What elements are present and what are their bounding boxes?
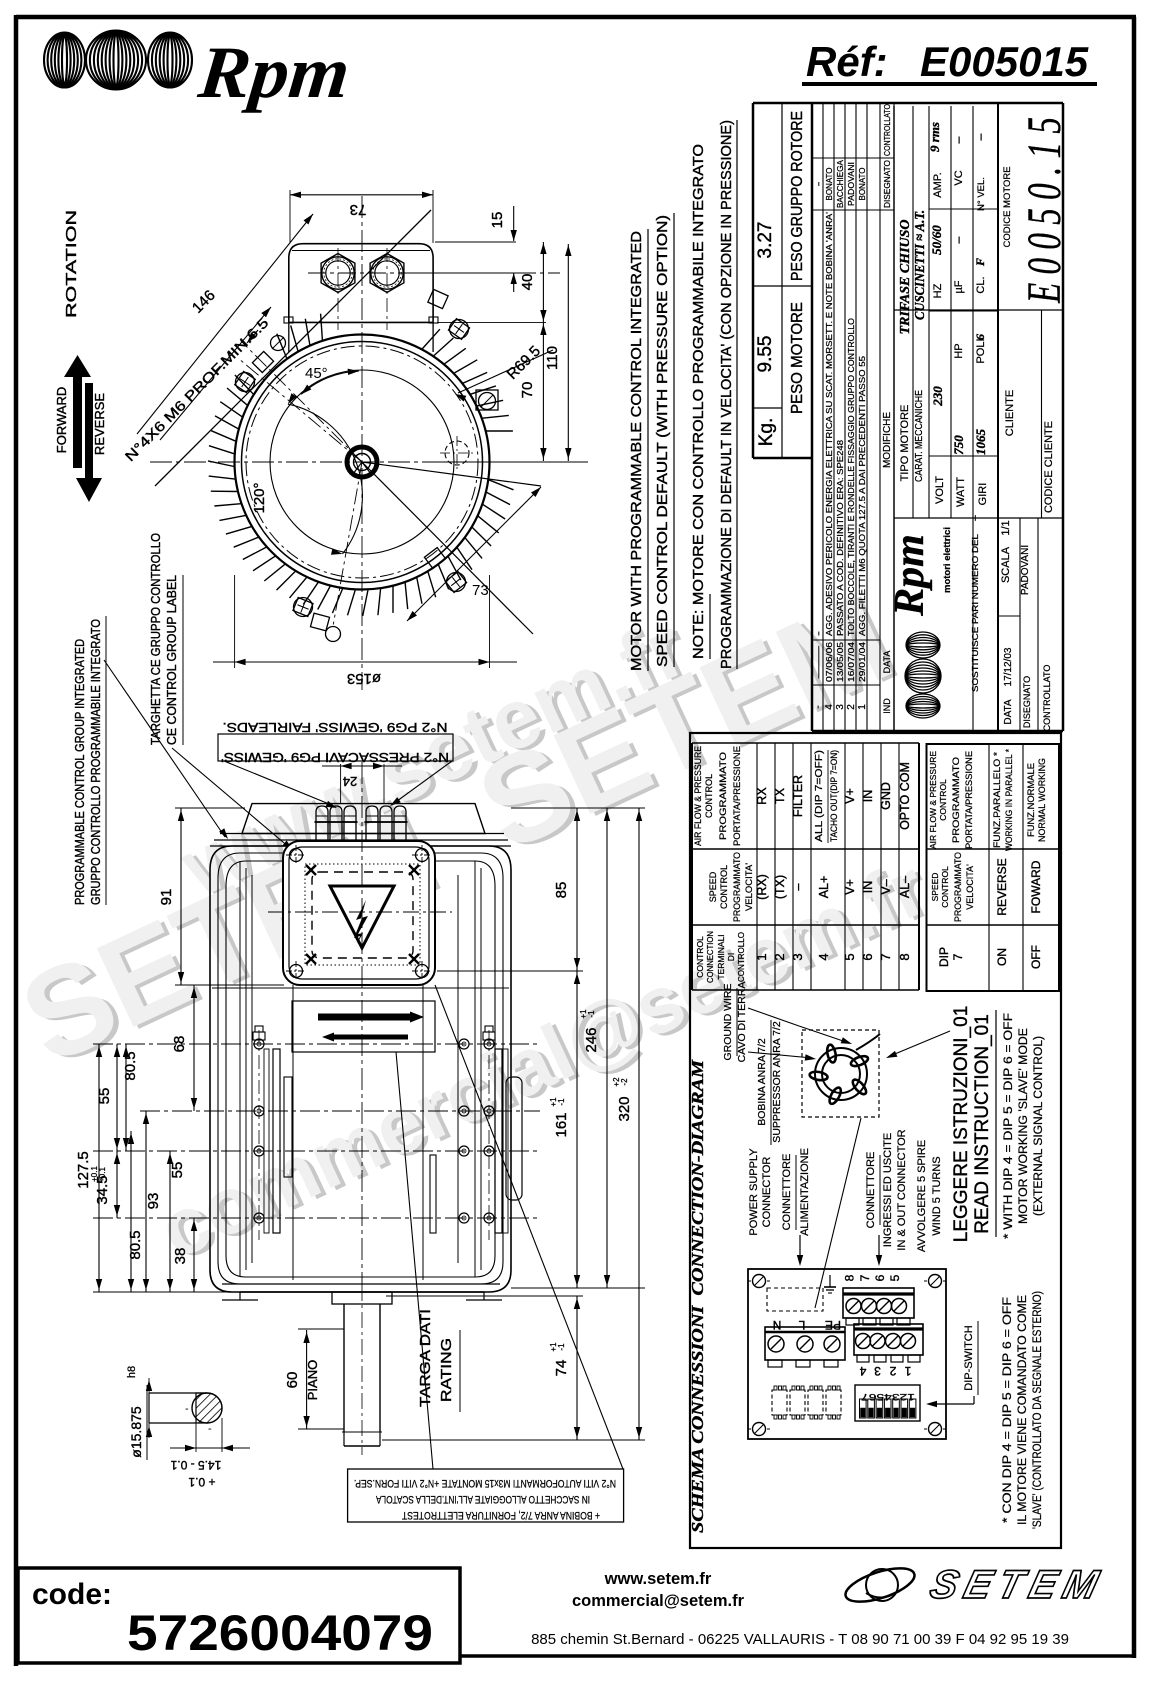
svg-text:RX: RX (755, 787, 769, 805)
svg-text:1: 1 (857, 704, 868, 710)
svg-text:AIR FLOW & PRESSURE: AIR FLOW & PRESSURE (693, 746, 703, 846)
svg-text:SPEED: SPEED (930, 873, 940, 902)
svg-text:3: 3 (835, 704, 846, 710)
svg-text:Réf:: Réf: (806, 38, 888, 85)
svg-text:CAVO DI TERRA: CAVO DI TERRA (736, 982, 748, 1063)
svg-text:2: 2 (772, 953, 787, 960)
svg-text:AGG. ADESIVO PERICOLO ENERGIA: AGG. ADESIVO PERICOLO ENERGIA ELETTRICA … (825, 211, 834, 636)
svg-text:CLIENTE: CLIENTE (1004, 390, 1016, 436)
svg-text:5: 5 (842, 953, 857, 960)
svg-text:DATA: DATA (882, 651, 892, 674)
svg-text:CONTROL: CONTROL (695, 936, 705, 978)
svg-text:READ INSTRUCTION_01: READ INSTRUCTION_01 (972, 1014, 993, 1234)
svg-text:RATING: RATING (439, 1338, 455, 1402)
svg-text:VELOCITA': VELOCITA' (744, 863, 755, 911)
svg-text:POWER SUPPLY: POWER SUPPLY (748, 1148, 760, 1236)
svg-text:CONNETTORE: CONNETTORE (781, 1154, 793, 1231)
svg-text:1: 1 (754, 953, 769, 960)
svg-text:2: 2 (846, 704, 857, 710)
svg-text:IN: IN (861, 790, 875, 803)
svg-text:4: 4 (859, 1364, 866, 1378)
svg-text:TACHO OUT(DIP 7=ON): TACHO OUT(DIP 7=ON) (829, 750, 839, 842)
svg-text:CONTROL: CONTROL (704, 774, 714, 818)
svg-text:PORTATA/PRESSIONE: PORTATA/PRESSIONE (732, 746, 743, 846)
svg-text:60: 60 (284, 1372, 301, 1389)
svg-text:F: F (973, 258, 987, 267)
svg-text:5: 5 (888, 1274, 902, 1281)
svg-text:* WITH DIP 4 = DIP 5 = DIP 6 =: * WITH DIP 4 = DIP 5 = DIP 6 = OFF (1003, 1013, 1015, 1239)
svg-text:15: 15 (489, 212, 506, 229)
svg-text:AGG. FILETTI M6 QUOTA 127.5 A: AGG. FILETTI M6 QUOTA 127.5 A DAI PRECED… (858, 355, 867, 636)
svg-text:(RX): (RX) (755, 874, 769, 900)
svg-text:BOBINA ANRA 7/2: BOBINA ANRA 7/2 (756, 1038, 768, 1126)
svg-text:AL–: AL– (898, 876, 912, 898)
svg-text:POLI: POLI (975, 338, 987, 363)
svg-text:SCHEMA CONNESSIONI CONNECTION: SCHEMA CONNESSIONI CONNECTION-DIAGRAM (688, 1059, 707, 1533)
svg-text:–: – (951, 236, 965, 243)
svg-text:SPEED: SPEED (708, 871, 718, 902)
svg-text:PROGRAMMATO: PROGRAMMATO (718, 752, 729, 840)
svg-text:TIPO MOTORE: TIPO MOTORE (899, 405, 911, 482)
svg-text:3: 3 (790, 953, 805, 960)
svg-text:17/12/03: 17/12/03 (1003, 647, 1014, 686)
svg-text:–: – (951, 136, 965, 143)
svg-text:ROTATION: ROTATION (63, 210, 80, 318)
svg-text:CONTROLLO: CONTROLLO (736, 932, 746, 982)
svg-text:6: 6 (973, 334, 987, 340)
svg-text:DI: DI (726, 953, 736, 962)
svg-text:OPTO COM: OPTO COM (898, 762, 912, 830)
svg-text:-: - (813, 705, 824, 708)
svg-text:L: L (798, 1318, 805, 1332)
svg-text:ø153: ø153 (347, 670, 381, 687)
svg-text:750: 750 (951, 435, 966, 455)
svg-text:PASSATO A COD. DEFINITIVO ERA:: PASSATO A COD. DEFINITIVO ERA: SPE248 (836, 439, 845, 636)
svg-text:V+: V+ (843, 879, 857, 895)
svg-text:µF: µF (953, 280, 965, 293)
svg-text:SETEM: SETEM (926, 1562, 1110, 1607)
svg-text:PROGRAMMATO: PROGRAMMATO (732, 852, 743, 922)
svg-text:commercial@setem.fr: commercial@setem.fr (572, 1592, 745, 1610)
svg-text:ALL (DIP 7=OFF): ALL (DIP 7=OFF) (814, 750, 825, 842)
svg-text:N° VEL.: N° VEL. (976, 177, 987, 211)
svg-text:13/05/05: 13/05/05 (835, 642, 845, 682)
svg-text:CONTROLLATO: CONTROLLATO (1042, 665, 1052, 732)
svg-text:NOTE: MOTORE CON CONTROLLO PRO: NOTE: MOTORE CON CONTROLLO PROGRAMMABILE… (691, 144, 707, 659)
svg-text:TARGHETTA CE GRUPPO CONTROLLO: TARGHETTA CE GRUPPO CONTROLLO (149, 533, 163, 745)
svg-text:SOSTITUISCE PARI NUMERO DEL: SOSTITUISCE PARI NUMERO DEL (971, 533, 980, 692)
svg-text:PROGRAMMATO: PROGRAMMATO (953, 852, 963, 922)
svg-text:24: 24 (343, 774, 357, 789)
svg-text:6: 6 (873, 1274, 887, 1281)
svg-text:N°2 PG9 'GEWISS' FAIRLEADS.: N°2 PG9 'GEWISS' FAIRLEADS. (223, 720, 448, 734)
svg-text:NORMAL WORKING: NORMAL WORKING (1037, 758, 1048, 842)
svg-text:–: – (973, 133, 987, 140)
svg-text:(TX): (TX) (773, 875, 787, 899)
svg-text:FORWARD: FORWARD (54, 387, 69, 453)
svg-text:V–: V– (879, 879, 893, 894)
svg-text:OFF: OFF (1029, 945, 1043, 969)
svg-text:3: 3 (874, 1364, 881, 1378)
svg-text:CONTROL: CONTROL (938, 779, 948, 821)
svg-text:VELOCITA': VELOCITA' (965, 864, 975, 910)
svg-text:230: 230 (930, 386, 945, 407)
svg-text:-: - (185, 1403, 189, 1415)
svg-text:(EXTERNAL SIGNAL CONTROL): (EXTERNAL SIGNAL CONTROL) (1033, 1036, 1045, 1216)
svg-text:29/01/04: 29/01/04 (857, 642, 867, 682)
svg-text:07/06/06: 07/06/06 (824, 642, 834, 682)
svg-text:MOTOR WORKING 'SLAVE' MODE: MOTOR WORKING 'SLAVE' MODE (1018, 1028, 1030, 1224)
svg-text:246: 246 (583, 1027, 600, 1052)
svg-text:PESO MOTORE: PESO MOTORE (789, 302, 806, 414)
svg-text:7: 7 (858, 1274, 872, 1281)
svg-text:ø15.875: ø15.875 (128, 1406, 144, 1458)
svg-text:1: 1 (904, 1364, 911, 1378)
svg-text:DIP: DIP (937, 947, 951, 967)
svg-text:WATT: WATT (955, 477, 967, 507)
svg-text:www.setem.fr: www.setem.fr (604, 1570, 712, 1588)
svg-text:V+: V+ (843, 788, 857, 804)
svg-text:WORKING IN PARALLEL *: WORKING IN PARALLEL * (1004, 749, 1015, 851)
svg-text:CONNECTOR: CONNECTOR (761, 1157, 773, 1228)
svg-text:73: 73 (350, 201, 367, 218)
svg-text:REVERSE: REVERSE (995, 858, 1009, 915)
svg-text:h8: h8 (126, 1366, 138, 1378)
svg-text:9.55: 9.55 (755, 336, 776, 373)
svg-text:110: 110 (544, 346, 561, 370)
svg-text:Rpm: Rpm (887, 534, 933, 617)
svg-text:LEGGERE ISTRUZIONI_01: LEGGERE ISTRUZIONI_01 (951, 1006, 972, 1243)
svg-text:FUNZ.NORMALE: FUNZ.NORMALE (1026, 763, 1037, 837)
svg-text:-1: -1 (557, 1343, 566, 1351)
svg-text:-2: -2 (620, 1078, 629, 1086)
svg-text:DISEGNATO: DISEGNATO (882, 160, 892, 208)
svg-text:SUPPRESSOR ANRA 7/2: SUPPRESSOR ANRA 7/2 (771, 1021, 783, 1143)
svg-text:BACCHIEGA: BACCHIEGA (835, 160, 845, 208)
svg-text:CE CONTROL GROUP LABEL: CE CONTROL GROUP LABEL (165, 575, 179, 745)
svg-text:40: 40 (519, 274, 536, 291)
svg-text:-1: -1 (587, 1010, 596, 1018)
svg-text:IN SACCHETTO ALLOGGIATE ALL'IN: IN SACCHETTO ALLOGGIATE ALL'INT.DELLA SC… (376, 1493, 590, 1505)
svg-text:MOTOR WITH PROGRAMMABLE CONTRO: MOTOR WITH PROGRAMMABLE CONTROL INTEGRAT… (629, 231, 645, 671)
svg-text:-: - (814, 631, 823, 636)
svg-text:FOWARD: FOWARD (1029, 860, 1043, 913)
svg-text:CODICE MOTORE: CODICE MOTORE (1002, 166, 1013, 247)
svg-text:GIRI: GIRI (977, 483, 989, 506)
svg-text:CUSCINETTI ≈ A.T.: CUSCINETTI ≈ A.T. (913, 210, 928, 320)
svg-text:1065: 1065 (973, 429, 988, 456)
svg-text:CODICE CLIENTE: CODICE CLIENTE (1043, 421, 1055, 513)
svg-text:68: 68 (171, 1036, 188, 1053)
svg-text:CONTROL: CONTROL (940, 866, 950, 908)
svg-text:+ BOBINA ANRA 7/2, FORNITURA E: + BOBINA ANRA 7/2, FORNITURA ELETTROTEST (402, 1509, 600, 1521)
svg-text:2: 2 (889, 1364, 896, 1378)
svg-text:DIP-SWITCH: DIP-SWITCH (963, 1325, 975, 1390)
svg-text:+ 0.1: + 0.1 (188, 1475, 215, 1489)
svg-text:93: 93 (145, 1193, 162, 1210)
svg-text:E 0 0 5 0 . 1 5: E 0 0 5 0 . 1 5 (1018, 117, 1071, 304)
svg-text:INGRESSI ED USCITE: INGRESSI ED USCITE (882, 1133, 894, 1247)
svg-text:ON: ON (995, 948, 1009, 966)
svg-text:PIANO: PIANO (305, 1360, 320, 1400)
svg-text:CONNECTION: CONNECTION (705, 931, 715, 983)
svg-text:AL+: AL+ (817, 876, 831, 899)
svg-text:BONATO: BONATO (857, 167, 867, 200)
svg-text:GROUND WIRE: GROUND WIRE (722, 984, 734, 1061)
svg-text:16/07/04: 16/07/04 (846, 642, 856, 682)
svg-text:TX: TX (773, 787, 787, 804)
svg-text:8: 8 (897, 953, 912, 960)
svg-text:DISEGNATO: DISEGNATO (1022, 676, 1032, 728)
svg-text:-1: -1 (557, 1098, 566, 1106)
svg-text:GND: GND (879, 782, 893, 810)
svg-text:120°: 120° (251, 482, 268, 513)
svg-text:IND: IND (882, 698, 892, 714)
svg-text:'SLAVE' (CONTROLLATO DA SEGNAL: 'SLAVE' (CONTROLLATO DA SEGNALE ESTERNO) (1032, 1291, 1044, 1529)
svg-text:70: 70 (519, 382, 536, 399)
svg-text:7: 7 (878, 953, 893, 960)
svg-text:PE: PE (825, 1318, 841, 1332)
svg-text:AIR FLOW & PRESSURE: AIR FLOW & PRESSURE (928, 751, 938, 849)
svg-text:SCALA: SCALA (1000, 546, 1012, 583)
svg-text:80.5: 80.5 (127, 1230, 144, 1259)
svg-text:8: 8 (843, 1274, 857, 1281)
svg-text:BONATO: BONATO (824, 167, 834, 200)
svg-text:FUNZ.PARALLELO *: FUNZ.PARALLELO * (992, 752, 1003, 848)
svg-text:PADOVANI: PADOVANI (1020, 545, 1031, 595)
svg-text:38: 38 (172, 1248, 189, 1265)
svg-text:HP: HP (953, 343, 965, 358)
svg-text:SPEED CONTROL DEFAULT (WITH PR: SPEED CONTROL DEFAULT (WITH PRESSURE OPT… (655, 215, 671, 667)
svg-text:–: – (970, 515, 981, 521)
svg-text:Kg.: Kg. (756, 418, 777, 447)
svg-text:CARAT. MECCANICHE: CARAT. MECCANICHE (913, 390, 925, 482)
svg-text:4: 4 (824, 704, 835, 710)
svg-text:885 chemin St.Bernard - 0622: 885 chemin St.Bernard - 06225 VALLAURIS … (531, 1631, 1069, 1648)
svg-text:1/1: 1/1 (1000, 520, 1012, 535)
svg-text:6: 6 (860, 953, 875, 960)
svg-text:5726004079: 5726004079 (127, 1605, 433, 1661)
svg-text:80.5: 80.5 (122, 1051, 139, 1080)
svg-text:* CON DIP 4 = DIP 5 = DIP 6 =: * CON DIP 4 = DIP 5 = DIP 6 = OFF (1002, 1297, 1014, 1523)
svg-text:CONTROLLATO: CONTROLLATO (882, 104, 892, 156)
svg-text:TOLTO BOCCOLE, TIRANTI E RONDE: TOLTO BOCCOLE, TIRANTI E RONDELLE FISSAG… (847, 318, 856, 636)
svg-text:55: 55 (169, 1162, 186, 1179)
svg-text:85: 85 (553, 882, 570, 899)
svg-text:9 rms: 9 rms (927, 122, 942, 152)
svg-text:TERMINALI: TERMINALI (716, 934, 726, 979)
svg-text:IN & OUT CONNECTOR: IN & OUT CONNECTOR (896, 1129, 908, 1250)
svg-text:3.27: 3.27 (755, 222, 776, 259)
svg-text:50/60: 50/60 (929, 225, 944, 255)
svg-text:-: - (813, 640, 823, 682)
svg-text:–: – (791, 883, 805, 890)
svg-text:CL.: CL. (975, 276, 987, 293)
svg-text:4: 4 (816, 953, 831, 960)
svg-text:N°2 VITI AUTOFORMANTI M3x15 MO: N°2 VITI AUTOFORMANTI M3x15 MONTATE +N°2… (354, 1477, 616, 1489)
svg-text:code:: code: (32, 1578, 112, 1611)
svg-text:PORTATA/PRESSIONE: PORTATA/PRESSIONE (964, 751, 974, 849)
svg-text:55: 55 (96, 1088, 113, 1105)
svg-text:45°: 45° (305, 365, 328, 382)
svg-text:HZ: HZ (932, 283, 944, 298)
svg-text:DATA: DATA (1003, 699, 1014, 725)
svg-text:PROGRAMMAZIONE DI DEFAULT IN V: PROGRAMMAZIONE DI DEFAULT IN VELOCITA' (… (719, 120, 735, 669)
svg-text:-0.1: -0.1 (98, 1167, 107, 1181)
svg-text:VOLT: VOLT (934, 476, 946, 504)
svg-text:N: N (773, 1318, 782, 1332)
svg-text:MODIFICHE: MODIFICHE (882, 412, 893, 468)
svg-text:GRUPPO CONTROLLO PROGRAMMABILE: GRUPPO CONTROLLO PROGRAMMABILE INTEGRATO (89, 619, 103, 905)
svg-text:-: - (208, 1423, 212, 1435)
svg-text:AMP.: AMP. (932, 172, 944, 197)
svg-text:N°2 PRESSACAVI PG9 'GEWISS': N°2 PRESSACAVI PG9 'GEWISS' (221, 750, 449, 764)
svg-text:CONNETTORE: CONNETTORE (865, 1152, 877, 1229)
svg-text:91: 91 (158, 889, 175, 906)
svg-text:PADOVANI: PADOVANI (846, 162, 856, 206)
svg-text:-: - (813, 181, 823, 186)
svg-text:320: 320 (616, 1096, 633, 1121)
svg-text:ALIMENTAZIONE: ALIMENTAZIONE (799, 1148, 811, 1236)
svg-text:TRIFASE CHIUSO: TRIFASE CHIUSO (898, 219, 913, 334)
svg-text:WIND 5 TURNS: WIND 5 TURNS (931, 1156, 943, 1235)
svg-text:Rpm: Rpm (194, 32, 354, 114)
svg-text:REVERSE: REVERSE (92, 393, 107, 455)
svg-text:CONTROL: CONTROL (719, 865, 729, 909)
svg-text:1234567: 1234567 (861, 1392, 915, 1402)
svg-text:161: 161 (553, 1112, 570, 1137)
svg-text:IN: IN (861, 881, 875, 894)
svg-text:AVVOLGERE 5 SPIRE: AVVOLGERE 5 SPIRE (916, 1140, 928, 1252)
svg-text:E005015: E005015 (920, 38, 1089, 85)
svg-text:74: 74 (553, 1360, 570, 1377)
svg-text:PESO GRUPPO ROTORE: PESO GRUPPO ROTORE (789, 111, 806, 281)
svg-text:PROGRAMMABLE CONTROL GROUP INT: PROGRAMMABLE CONTROL GROUP INTEGRATED (73, 639, 87, 905)
svg-text:14.5 - 0.1: 14.5 - 0.1 (170, 1458, 221, 1472)
svg-text:PROGRAMMATO: PROGRAMMATO (951, 757, 961, 843)
svg-text:IL MOTORE VIENE COMANDATO COME: IL MOTORE VIENE COMANDATO COME (1017, 1295, 1029, 1525)
svg-text:FILTER: FILTER (791, 775, 805, 817)
svg-text:7: 7 (951, 953, 965, 960)
svg-text:VC: VC (953, 170, 965, 185)
svg-text:73: 73 (472, 582, 489, 599)
svg-text:motori elettrici: motori elettrici (942, 527, 953, 593)
